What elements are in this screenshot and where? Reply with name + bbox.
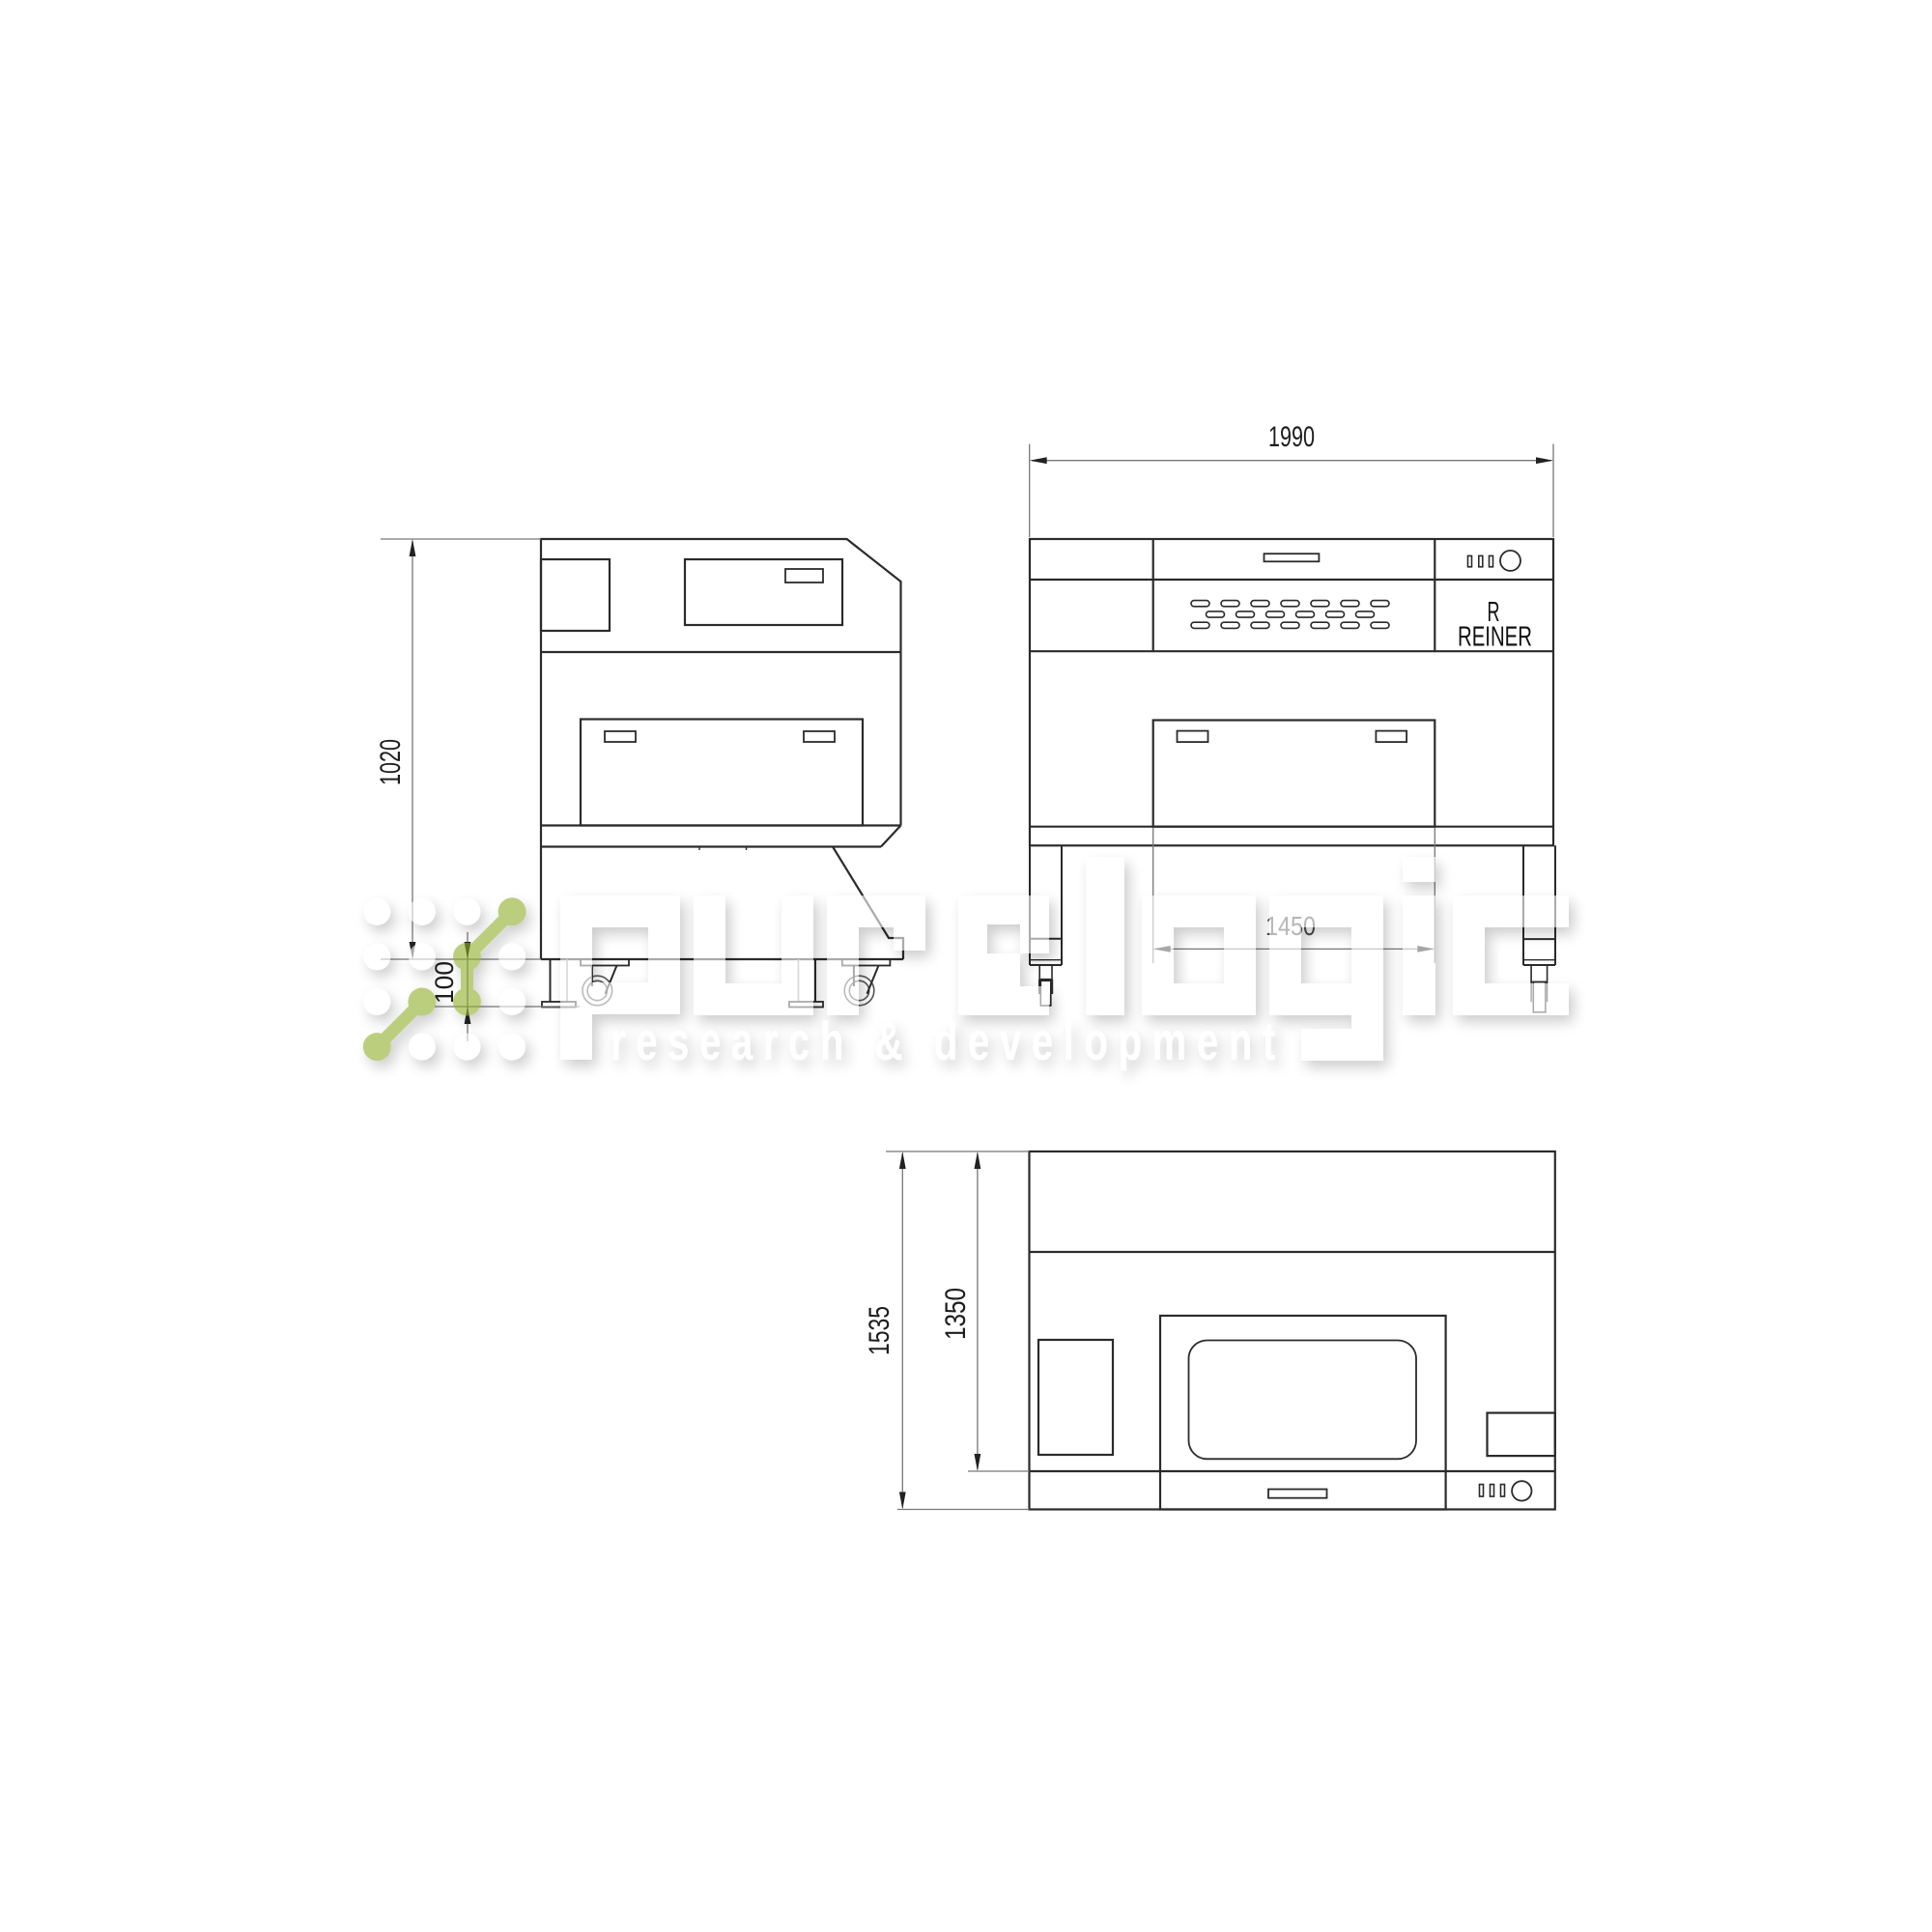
svg-text:REINER: REINER xyxy=(1458,622,1532,653)
svg-text:research & development: research & development xyxy=(611,1012,1280,1072)
svg-text:1990: 1990 xyxy=(1268,421,1315,453)
svg-text:1535: 1535 xyxy=(864,1306,895,1355)
svg-text:1350: 1350 xyxy=(940,1288,972,1340)
svg-text:1020: 1020 xyxy=(375,739,407,785)
